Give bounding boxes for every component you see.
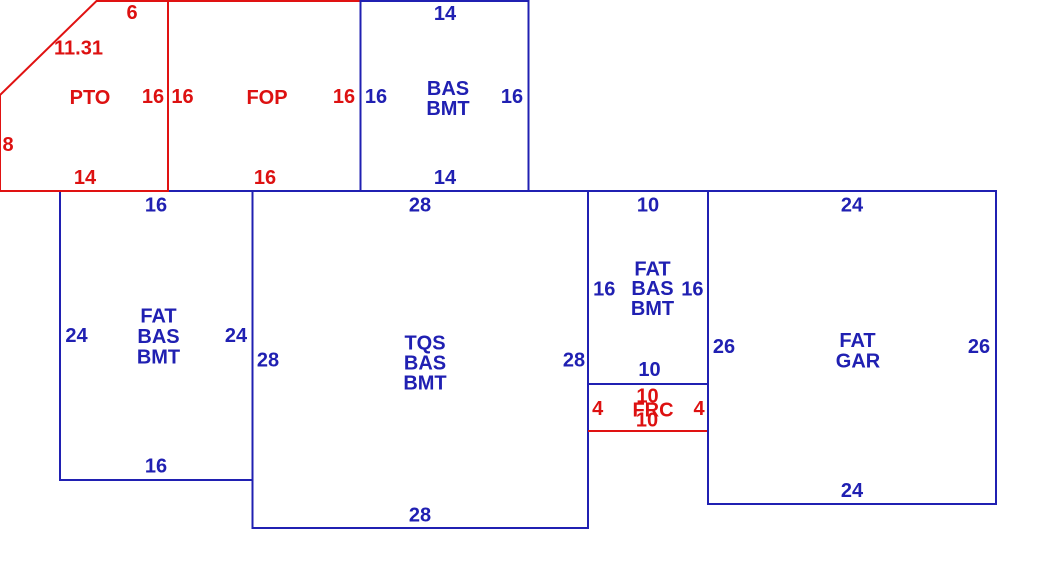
svg-text:16: 16 [365, 86, 387, 108]
svg-text:8: 8 [2, 134, 13, 156]
svg-text:4: 4 [693, 398, 705, 420]
svg-text:14: 14 [434, 3, 457, 25]
svg-text:TQSBASBMT: TQSBASBMT [403, 333, 446, 395]
svg-text:16: 16 [501, 86, 523, 108]
svg-text:16: 16 [142, 86, 164, 108]
svg-text:10: 10 [637, 195, 659, 217]
svg-text:11.31: 11.31 [54, 38, 103, 60]
svg-text:16: 16 [681, 278, 703, 300]
svg-text:PTO: PTO [70, 87, 111, 109]
svg-text:FOP: FOP [246, 87, 287, 109]
svg-text:24: 24 [841, 480, 864, 502]
svg-text:28: 28 [409, 505, 431, 527]
svg-text:24: 24 [65, 325, 88, 347]
svg-text:26: 26 [968, 336, 990, 358]
svg-text:16: 16 [171, 86, 193, 108]
svg-text:28: 28 [257, 350, 279, 372]
svg-text:24: 24 [225, 325, 248, 347]
svg-text:FATBASBMT: FATBASBMT [631, 259, 674, 320]
svg-text:28: 28 [409, 195, 431, 217]
svg-text:6: 6 [126, 2, 137, 24]
svg-text:16: 16 [145, 456, 167, 478]
svg-text:16: 16 [254, 167, 276, 189]
svg-text:24: 24 [841, 195, 864, 217]
svg-text:FATBASBMT: FATBASBMT [137, 306, 180, 369]
svg-text:28: 28 [563, 350, 585, 372]
svg-text:FATGAR: FATGAR [836, 330, 881, 373]
svg-text:26: 26 [713, 336, 735, 358]
svg-text:BASBMT: BASBMT [426, 78, 469, 120]
svg-text:10: 10 [636, 410, 658, 432]
svg-text:16: 16 [333, 86, 355, 108]
svg-text:10: 10 [638, 359, 660, 381]
svg-text:16: 16 [145, 195, 167, 217]
svg-text:14: 14 [74, 167, 97, 189]
svg-text:14: 14 [434, 167, 457, 189]
svg-text:4: 4 [592, 398, 604, 420]
svg-text:16: 16 [593, 278, 615, 300]
